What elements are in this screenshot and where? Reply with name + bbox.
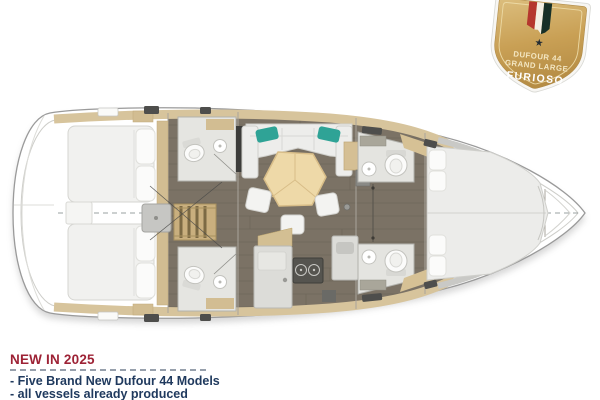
headboard: [157, 221, 168, 305]
pillow: [136, 263, 155, 298]
pillow: [429, 235, 446, 255]
engine-box: [142, 204, 171, 232]
pillow: [136, 166, 155, 201]
bullet-list: - Five Brand New Dufour 44 Models - all …: [10, 375, 310, 400]
model-badge: ★ DUFOUR 44 GRAND LARGE FURIOSO: [486, 0, 592, 97]
flyer-canvas: ★ DUFOUR 44 GRAND LARGE FURIOSO NEW IN 2…: [0, 0, 600, 400]
winch-fitting: [344, 204, 350, 210]
head-aft-starboard: [178, 247, 236, 311]
pillow: [429, 150, 446, 170]
vanity-counter: [206, 298, 234, 309]
head-aft-port: [178, 117, 236, 181]
badge-shield: ★ DUFOUR 44 GRAND LARGE FURIOSO: [486, 0, 592, 97]
stool: [314, 192, 339, 217]
fridge-top: [322, 290, 336, 302]
star-icon: ★: [534, 38, 544, 50]
new-in-heading: NEW IN 2025: [10, 352, 310, 367]
vanity-counter: [360, 280, 386, 290]
vanity-counter: [360, 136, 386, 146]
footer-text-block: NEW IN 2025 - Five Brand New Dufour 44 M…: [10, 352, 310, 400]
wardrobe: [133, 304, 153, 315]
sofa-arm-left: [242, 126, 258, 178]
toilet-icon: [385, 250, 407, 276]
toilet-icon: [385, 150, 407, 176]
pillow: [136, 129, 155, 164]
companionway-stairs: [174, 204, 216, 240]
vanity-counter: [206, 119, 234, 130]
stove-icon: [293, 258, 323, 283]
headboard: [157, 121, 168, 205]
bullet-item: - all vessels already produced: [10, 388, 310, 400]
dashed-divider: [10, 369, 206, 371]
stool: [245, 187, 272, 213]
pillow: [429, 256, 446, 276]
pillow: [429, 171, 446, 191]
corridor-locker: [66, 202, 92, 224]
